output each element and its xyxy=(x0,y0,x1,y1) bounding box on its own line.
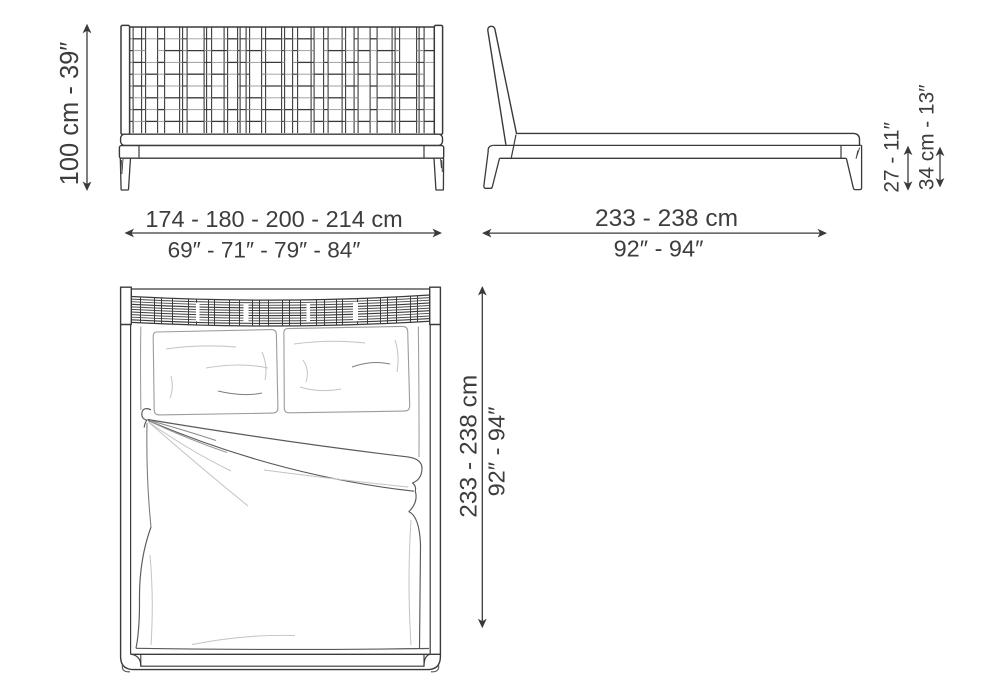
svg-text:233 - 238 cm: 233 - 238 cm xyxy=(595,205,738,232)
svg-text:233 - 238 cm: 233 - 238 cm xyxy=(456,375,483,518)
svg-text:27 - 11″: 27 - 11″ xyxy=(881,122,904,193)
svg-text:34 cm - 13″: 34 cm - 13″ xyxy=(916,84,939,190)
svg-text:92″ - 94″: 92″ - 94″ xyxy=(484,407,510,497)
svg-text:174 - 180 - 200 - 214 cm: 174 - 180 - 200 - 214 cm xyxy=(145,206,402,232)
svg-text:100 cm - 39″: 100 cm - 39″ xyxy=(56,42,84,186)
svg-text:92″ - 94″: 92″ - 94″ xyxy=(614,236,704,262)
svg-text:69″ - 71″ - 79″ - 84″: 69″ - 71″ - 79″ - 84″ xyxy=(168,237,361,262)
